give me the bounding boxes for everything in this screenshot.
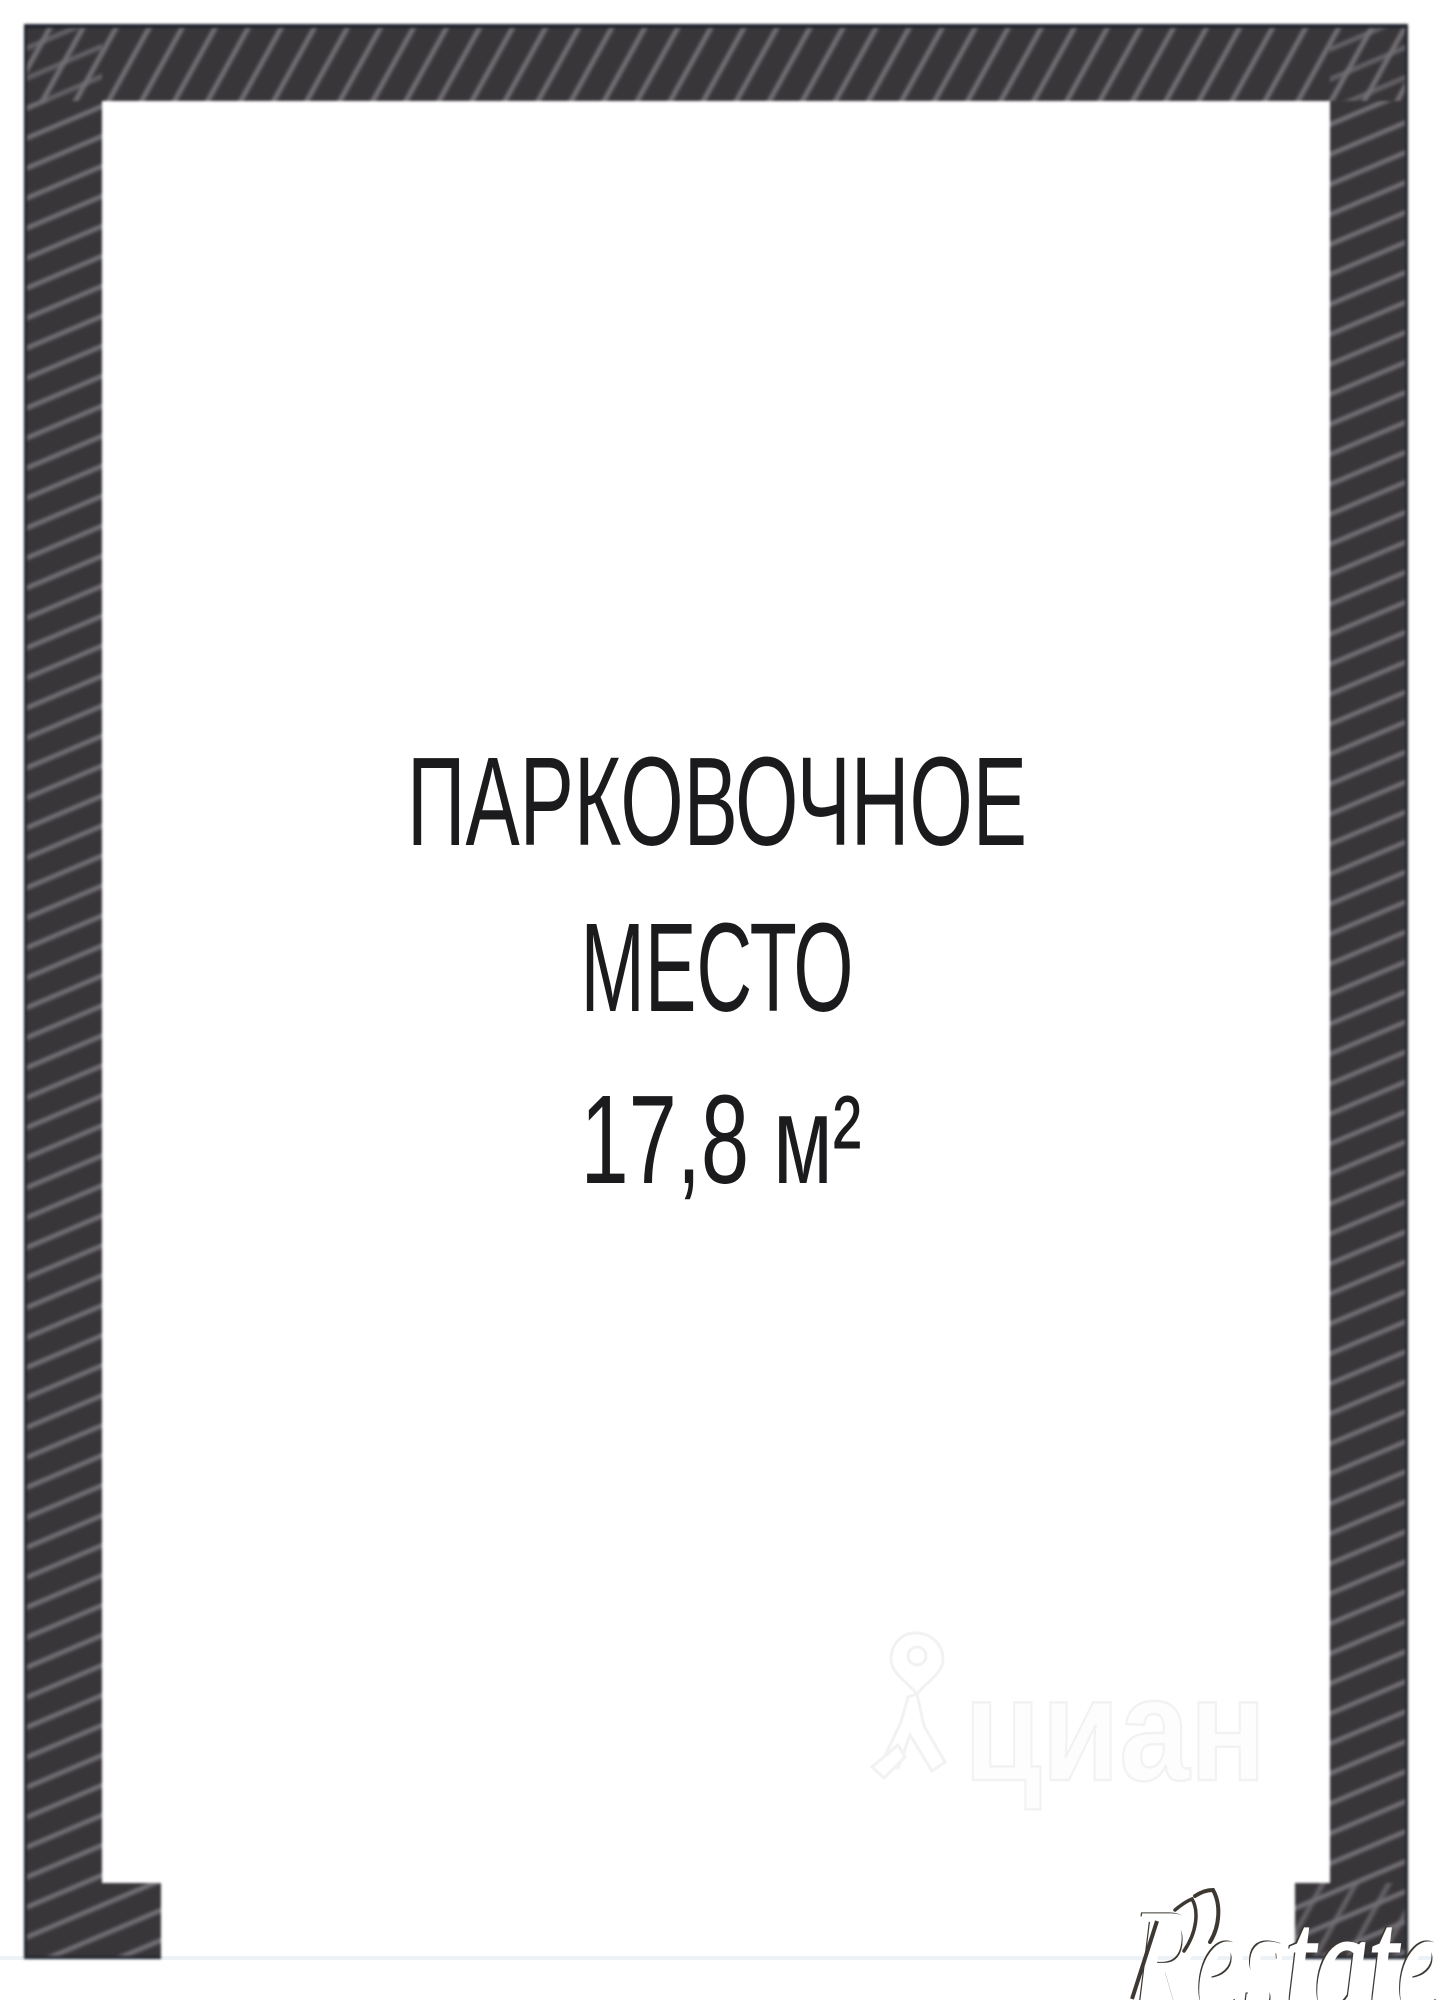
svg-text:Restate: Restate [1131,1880,1442,2000]
